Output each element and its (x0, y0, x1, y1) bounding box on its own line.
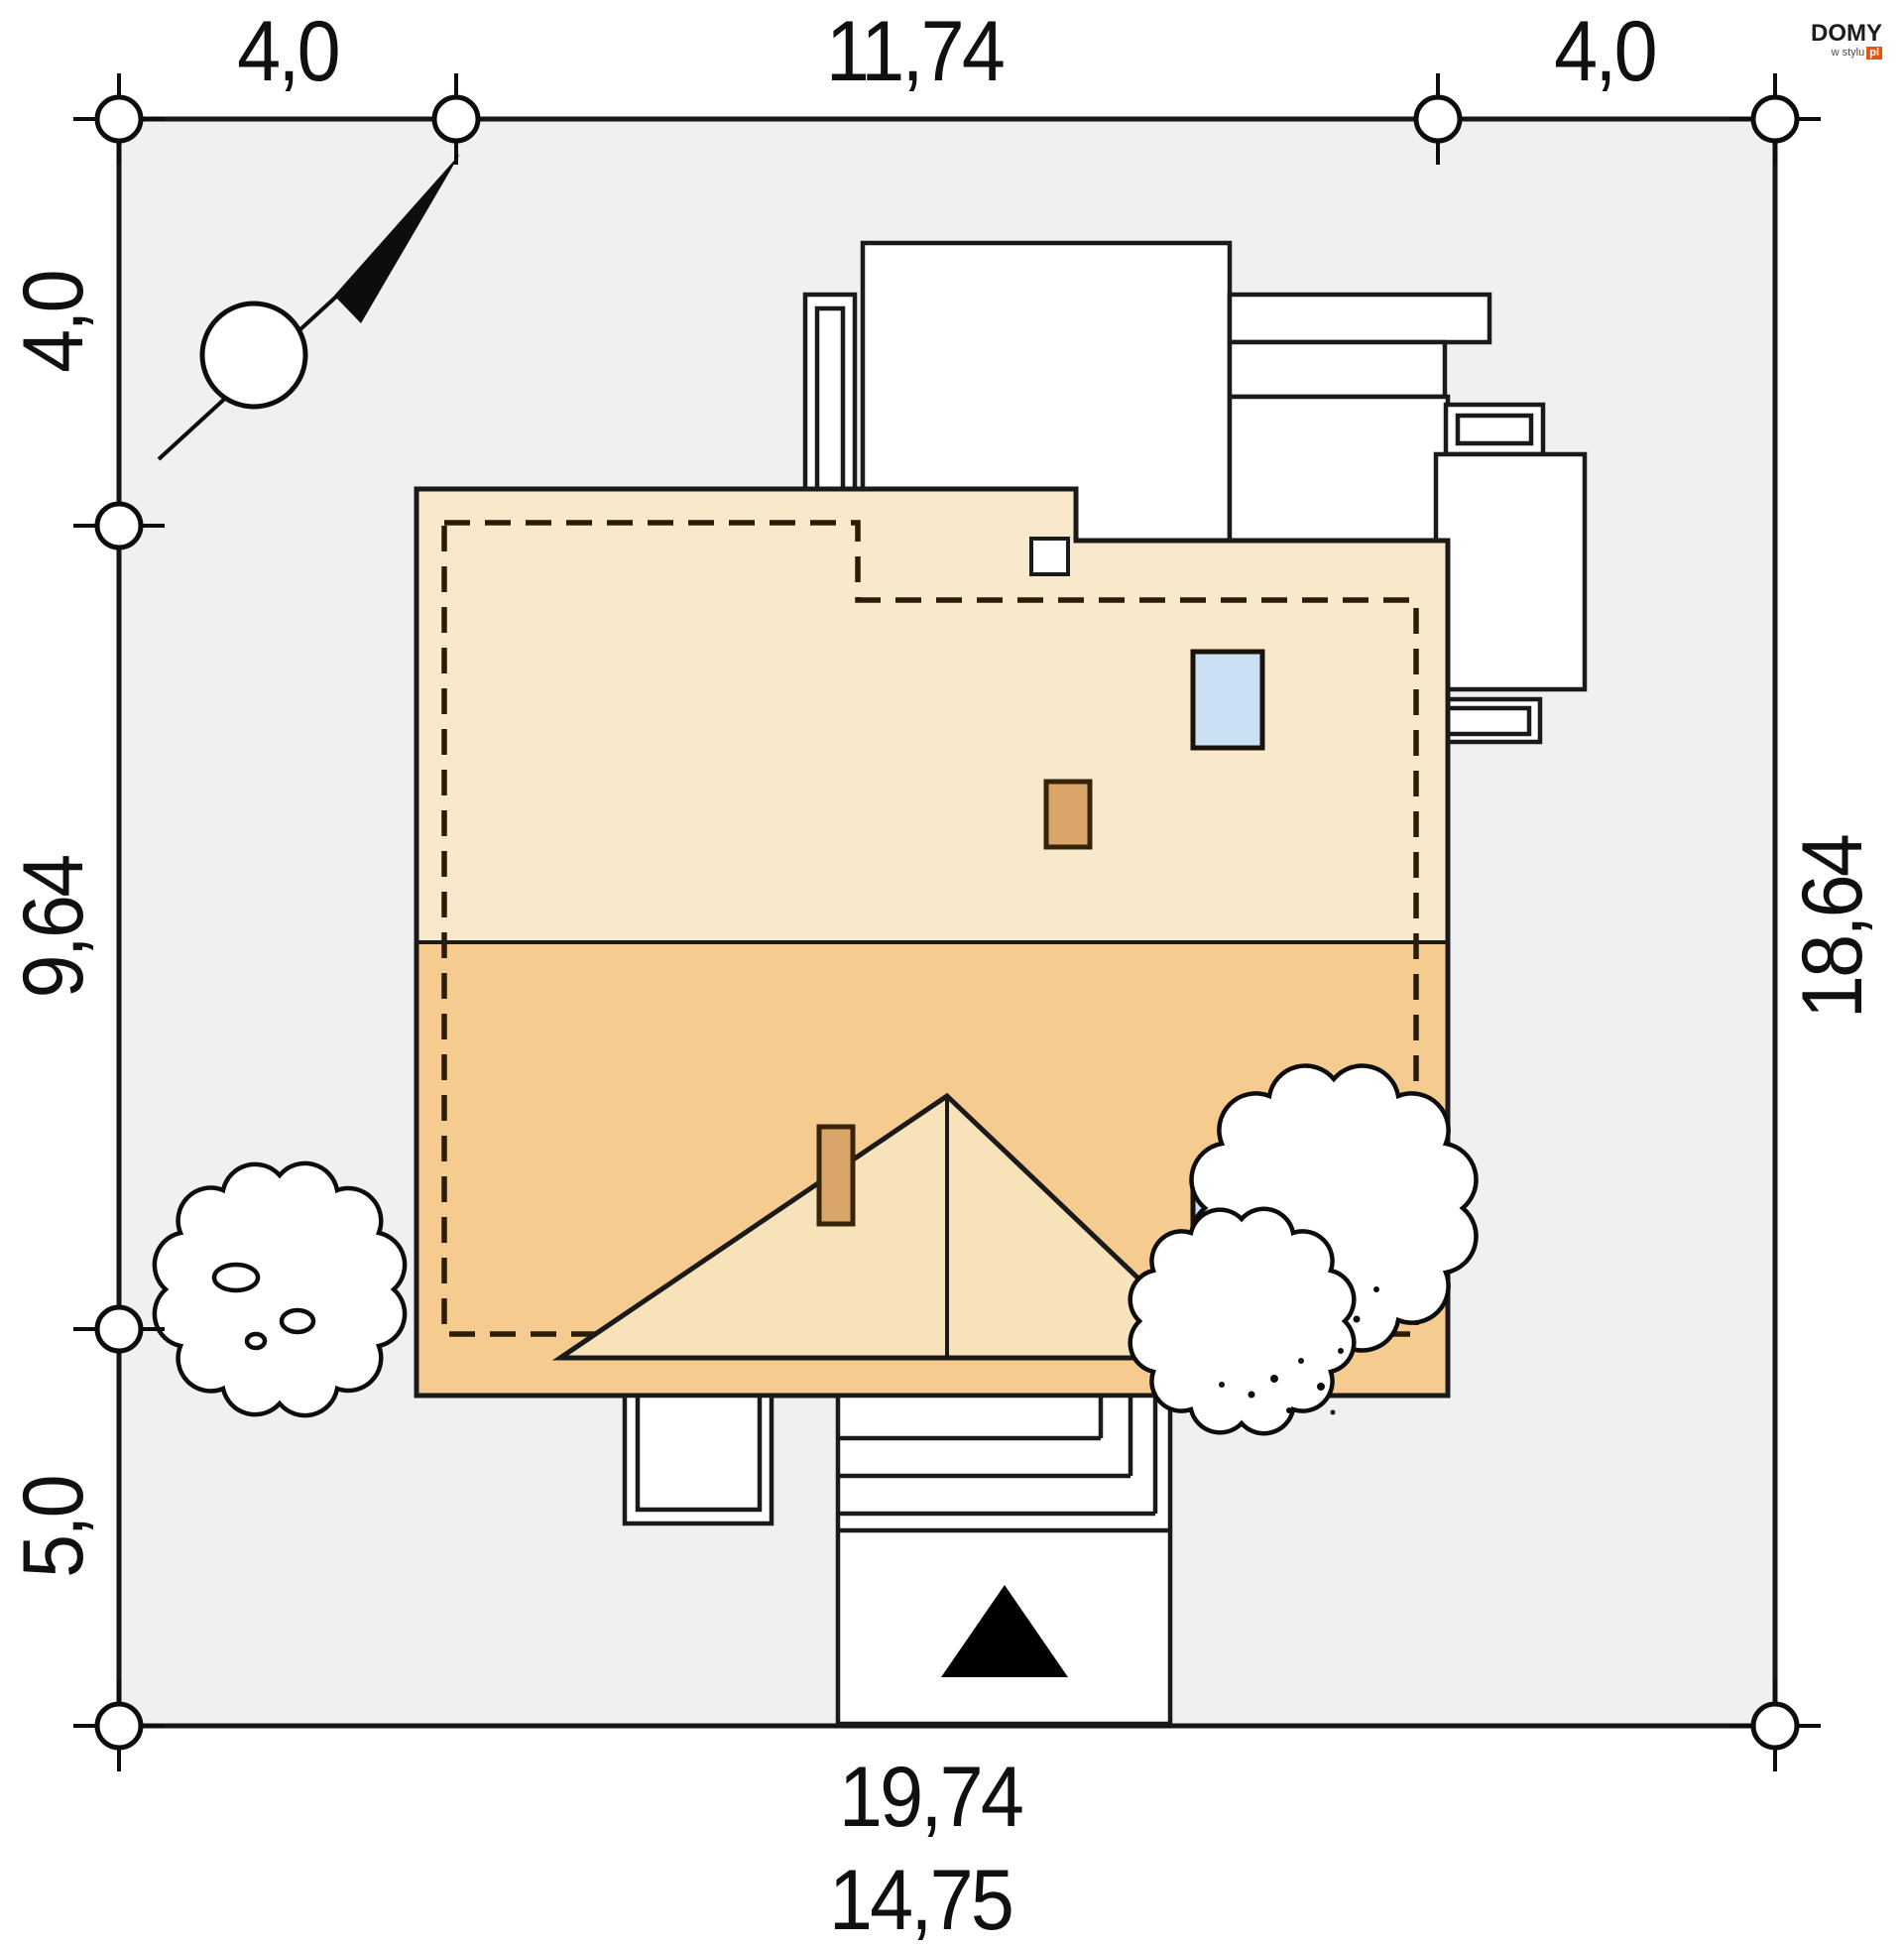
east-dormer-upper-inner (1458, 416, 1531, 443)
roof-upper-slope (416, 489, 1448, 942)
brand-tagline-text: w stylu (1832, 47, 1865, 59)
terrace-inner (638, 1396, 760, 1510)
brand-suffix: pl (1866, 47, 1882, 60)
east-band-2 (1230, 342, 1445, 397)
dimension-top-left: 4,0 (237, 9, 338, 94)
dimension-right-side: 18,64 (1790, 836, 1875, 1019)
dimension-top-center: 11,74 (826, 9, 1003, 94)
dimension-left-middle: 9,64 (11, 857, 96, 999)
site-plan-drawing (0, 0, 1904, 1886)
dimension-top-right: 4,0 (1554, 9, 1655, 94)
brand-tagline: w stylupl (1783, 47, 1882, 60)
dimension-left-top: 4,0 (11, 272, 96, 373)
front-chimney-inner (817, 308, 843, 491)
brand-name: DOMY (1783, 22, 1882, 46)
dimension-bottom-partial: 14,75 (829, 1858, 1011, 1943)
dimension-bottom-total: 19,74 (839, 1755, 1021, 1840)
dimension-left-bottom: 5,0 (11, 1477, 96, 1578)
roof-hatch-box (1031, 539, 1068, 574)
tree-left-icon (155, 1163, 405, 1415)
roof-window-upper (1193, 652, 1262, 748)
chimney-lower (819, 1127, 853, 1224)
east-terrace (1436, 454, 1585, 689)
chimney-upper (1046, 782, 1090, 847)
east-band-3 (1230, 397, 1448, 544)
brand-logo: DOMY w stylupl (1783, 22, 1882, 60)
east-band-1 (1230, 295, 1489, 342)
